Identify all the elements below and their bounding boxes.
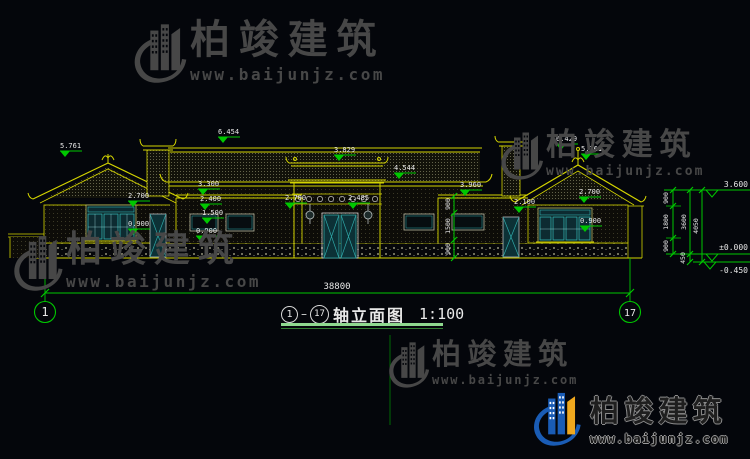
svg-text:3.829: 3.829 xyxy=(334,146,355,154)
ridge-finial xyxy=(572,151,584,165)
svg-text:6.454: 6.454 xyxy=(218,128,239,136)
right-wing-roof xyxy=(510,148,646,206)
svg-text:3.600: 3.600 xyxy=(724,180,748,189)
svg-text:5.761: 5.761 xyxy=(60,142,81,150)
title-underline xyxy=(281,323,443,326)
brand-logo-color: 柏竣建筑 www.baijunjz.com xyxy=(528,386,729,448)
cad-viewport: 5.761 6.454 3.829 4.544 3.960 3.300 2.40… xyxy=(0,0,750,459)
svg-text:3600: 3600 xyxy=(680,214,688,230)
axis-bubble-17: 17 xyxy=(620,302,641,323)
brand-name: 柏竣建筑 xyxy=(590,388,729,430)
title-dash: – xyxy=(301,307,307,321)
right-dim-stack: 900 1800 900 450 3600 4050 3.600 ±0.000 … xyxy=(662,180,750,275)
svg-text:4050: 4050 xyxy=(692,218,700,234)
svg-text:450: 450 xyxy=(679,252,687,264)
left-wingend-door xyxy=(150,214,166,257)
svg-text:1800: 1800 xyxy=(662,214,670,230)
ridge-finial xyxy=(102,154,114,163)
elevation-mark: 5.761 xyxy=(60,142,82,157)
elevation-mark: 5.761 xyxy=(581,145,603,160)
title-scale: 1:100 xyxy=(419,305,464,323)
brand-url: www.baijunjz.com xyxy=(590,432,729,446)
right-return-wall xyxy=(628,206,644,258)
svg-text:4.544: 4.544 xyxy=(394,164,415,172)
left-return-wall xyxy=(8,234,48,258)
svg-text:2.485: 2.485 xyxy=(348,194,369,202)
svg-text:3.960: 3.960 xyxy=(460,181,481,189)
svg-text:2.700: 2.700 xyxy=(285,194,306,202)
title-underline-thin xyxy=(281,328,443,329)
title-axis-from: 1 xyxy=(281,306,298,323)
svg-text:1.500: 1.500 xyxy=(202,209,223,217)
svg-text:900: 900 xyxy=(444,243,452,255)
svg-text:900: 900 xyxy=(662,192,670,204)
svg-text:5.761: 5.761 xyxy=(581,145,602,153)
elevation-mark: 6.454 xyxy=(218,128,240,143)
baijun-logo-color-icon xyxy=(528,386,584,448)
svg-text:3.300: 3.300 xyxy=(198,180,219,188)
svg-text:2.700: 2.700 xyxy=(579,188,600,196)
svg-text:900: 900 xyxy=(444,198,452,210)
svg-text:0.900: 0.900 xyxy=(128,220,149,228)
svg-text:2.400: 2.400 xyxy=(200,195,221,203)
svg-text:38800: 38800 xyxy=(323,282,350,292)
svg-text:0.900: 0.900 xyxy=(196,227,217,235)
elevation-mark: 6.429 xyxy=(556,135,578,150)
svg-text:-0.450: -0.450 xyxy=(719,266,748,275)
svg-text:6.429: 6.429 xyxy=(556,135,577,143)
right-wingend-door xyxy=(503,217,519,257)
title-axis-to: 17 xyxy=(310,305,329,324)
right-wing-window xyxy=(536,208,594,242)
svg-text:1500: 1500 xyxy=(444,218,452,234)
axis-bubble-1: 1 xyxy=(35,302,56,323)
elevation-mark: 2.700 xyxy=(579,188,601,203)
svg-text:2.700: 2.700 xyxy=(128,192,149,200)
svg-text:900: 900 xyxy=(662,240,670,252)
svg-text:17: 17 xyxy=(624,308,636,319)
svg-text:0.900: 0.900 xyxy=(580,217,601,225)
svg-text:2.100: 2.100 xyxy=(514,198,535,206)
svg-text:1: 1 xyxy=(41,305,48,319)
svg-text:±0.000: ±0.000 xyxy=(719,243,748,252)
